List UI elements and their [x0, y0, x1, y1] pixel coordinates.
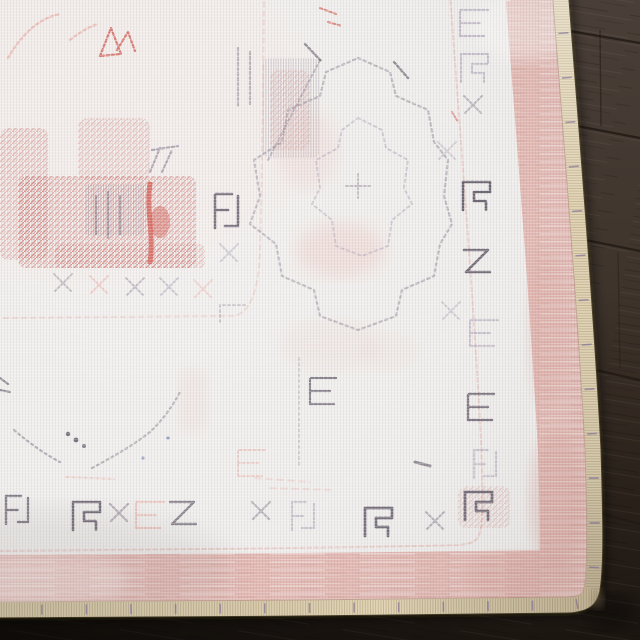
- binding-corner-curl: [590, 589, 604, 609]
- plank-butt-joint: [600, 30, 601, 126]
- photo-canvas: [0, 0, 640, 640]
- rug: [0, 0, 640, 640]
- rug-on-floor-photo: [0, 0, 640, 640]
